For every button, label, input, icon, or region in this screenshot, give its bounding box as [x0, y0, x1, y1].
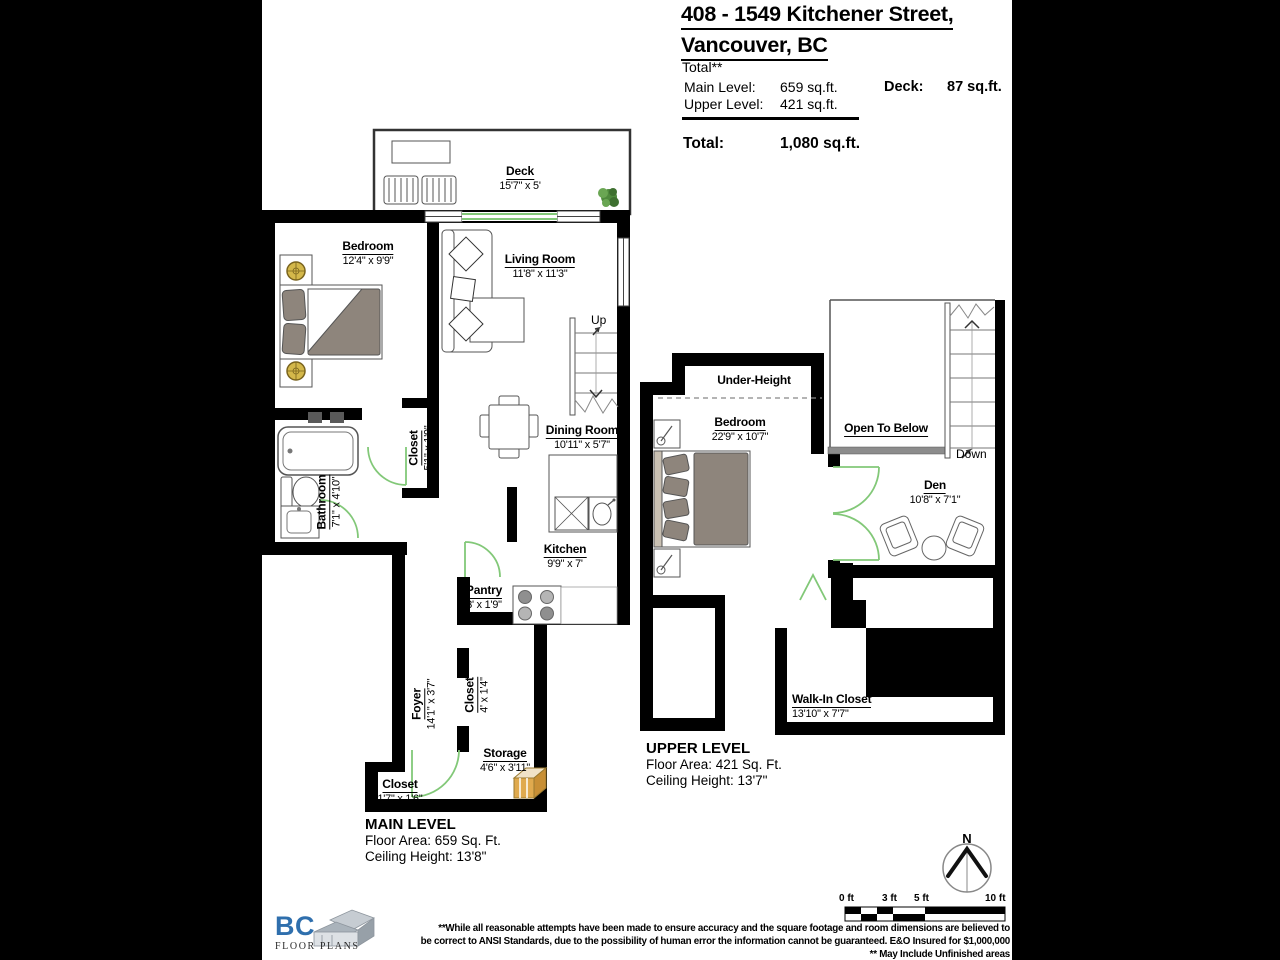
compass-icon [943, 844, 991, 892]
blanket [694, 453, 748, 545]
floor-plan-page: 408 - 1549 Kitchener Street, Vancouver, … [0, 0, 1280, 960]
compass-north-label: N [962, 831, 971, 846]
nightstand [654, 549, 680, 577]
sink-icon [589, 497, 617, 530]
main-level-summary: MAIN LEVEL Floor Area: 659 Sq. Ft. Ceili… [365, 816, 501, 865]
room-label-living-room: Living Room 11'8" x 11'3" [505, 250, 575, 281]
room-label-walk-in-closet: Walk-In Closet 13'10" x 7'7" [792, 690, 871, 721]
scale-label-10ft: 10 ft [985, 893, 1006, 904]
scale-label-5ft: 5 ft [914, 893, 929, 904]
room-label-pantry: Pantry 3' x 1'9" [466, 581, 502, 612]
stove-icon [513, 586, 617, 624]
floor-plan-sheet: 408 - 1549 Kitchener Street, Vancouver, … [262, 0, 1012, 960]
stairs-up [570, 318, 618, 415]
pillow [282, 289, 306, 320]
pillow [663, 498, 690, 519]
pillow [451, 277, 476, 302]
sofa [442, 230, 524, 352]
header-divider [682, 117, 859, 120]
room-label-closet-entry: Closet 1'7" x 1'6" [377, 775, 422, 806]
dishwasher-icon [555, 497, 588, 530]
pillow [663, 476, 690, 497]
headboard [654, 451, 662, 547]
upper-level-area-label: Upper Level: [684, 96, 763, 112]
pillow [282, 323, 306, 354]
stairs-down-label: Down [956, 447, 987, 461]
nightstand [654, 420, 680, 448]
counter [561, 587, 617, 624]
page-title: 408 - 1549 Kitchener Street, Vancouver, … [681, 2, 953, 61]
room-label-bedroom-main: Bedroom 12'4" x 9'9" [342, 237, 393, 268]
room-label-closet-foyer: Closet 4' x 1'4" [460, 677, 491, 713]
deck-bench [422, 176, 456, 204]
under-height-label: Under-Height [717, 371, 791, 389]
grand-total-label: Total: [683, 135, 724, 153]
disclaimer-text: **While all reasonable attempts have bee… [421, 922, 1010, 960]
lamp-icon [287, 262, 305, 280]
room-label-den: Den 10'8" x 7'1" [910, 476, 961, 507]
logo-bc-text: BC [275, 913, 315, 940]
scale-label-3ft: 3 ft [882, 893, 897, 904]
main-level-area-value: 659 sq.ft. [780, 79, 838, 95]
bed-main [280, 255, 382, 387]
upper-level-area-value: 421 sq.ft. [780, 96, 838, 112]
dining-table [480, 396, 538, 458]
scale-bar [845, 907, 1005, 921]
armchair-icon [945, 515, 986, 558]
stairs-down [945, 303, 995, 458]
den-furniture [879, 515, 986, 560]
upper-level-summary: UPPER LEVEL Floor Area: 421 Sq. Ft. Ceil… [646, 740, 782, 789]
total-note-label: Total** [682, 59, 722, 75]
deck-bench [384, 176, 418, 204]
room-label-deck: Deck 15'7" x 5' [499, 162, 540, 193]
main-level-area-label: Main Level: [684, 79, 756, 95]
lamp-icon [287, 362, 305, 380]
folding-door-icon [800, 575, 826, 600]
room-label-storage: Storage 4'6" x 3'11" [480, 744, 530, 775]
armchair-icon [879, 515, 920, 558]
room-label-kitchen: Kitchen 9'9" x 7' [544, 540, 587, 571]
deck-area-value: 87 sq.ft. [947, 79, 1002, 95]
kitchen-counter [549, 455, 617, 532]
deck-planter [392, 141, 450, 163]
room-label-bathroom: Bathroom 7'1" x 4'10" [312, 474, 343, 529]
room-label-closet-hall: Closet 5'1" x 1'9" [404, 425, 435, 470]
stairs-up-label: Up [591, 313, 606, 327]
room-label-foyer: Foyer 14'1" x 3'7" [407, 679, 438, 730]
scale-label-0ft: 0 ft [839, 893, 854, 904]
sliding-door-icon [462, 212, 557, 221]
deck-area-label: Deck: [884, 79, 924, 95]
logo-subtitle: FLOOR PLANS [275, 941, 360, 952]
room-label-bedroom-upper: Bedroom 22'9" x 10'7" [712, 413, 769, 444]
grand-total-value: 1,080 sq.ft. [780, 135, 860, 153]
open-to-below-label: Open To Below [844, 419, 928, 437]
room-label-dining-room: Dining Room 10'11" x 5'7" [546, 421, 618, 452]
round-table-icon [922, 536, 946, 560]
